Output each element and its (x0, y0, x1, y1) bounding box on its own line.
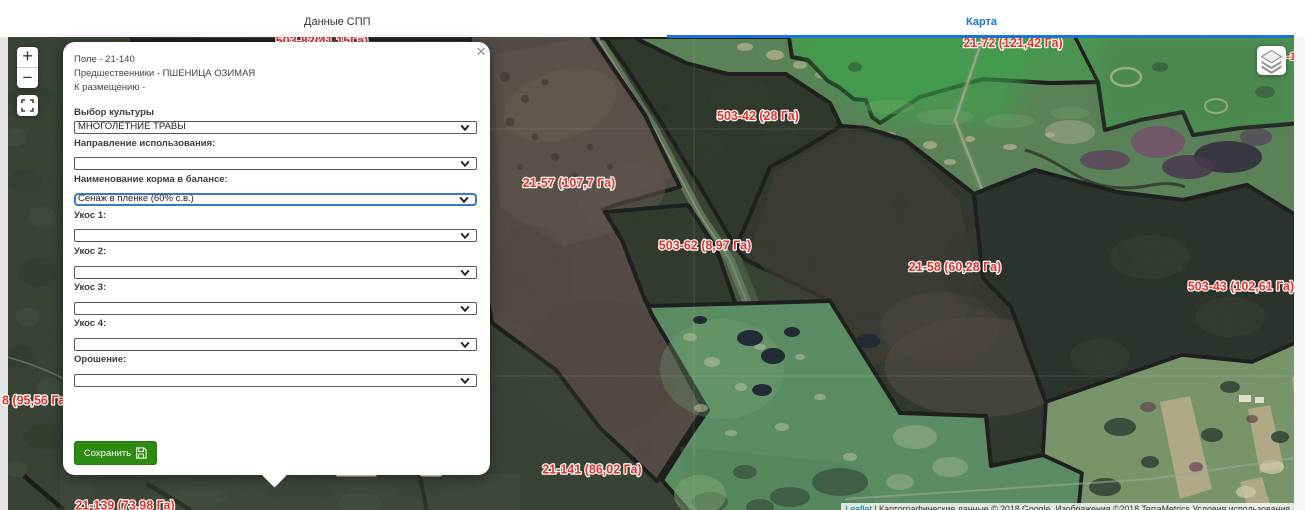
svg-text:8 (95,56 Га): 8 (95,56 Га) (2, 394, 69, 408)
svg-text:503-42 (28 Га): 503-42 (28 Га) (717, 109, 799, 123)
svg-text:-1: -1 (1286, 51, 1294, 63)
svg-text:21-141 (86,02 Га): 21-141 (86,02 Га) (542, 463, 641, 477)
svg-text:21-72 (121,42 Га): 21-72 (121,42 Га) (963, 37, 1062, 50)
svg-text:21-57 (107,7 Га): 21-57 (107,7 Га) (523, 176, 615, 190)
svg-text:21-139 (73,98 Га): 21-139 (73,98 Га) (75, 499, 174, 510)
svg-text:21-58 (60,28 Га): 21-58 (60,28 Га) (909, 260, 1001, 274)
svg-text:503-43 (102,61 Га): 503-43 (102,61 Га) (1188, 280, 1294, 294)
svg-text:503-62 (8,97 Га): 503-62 (8,97 Га) (659, 239, 751, 253)
